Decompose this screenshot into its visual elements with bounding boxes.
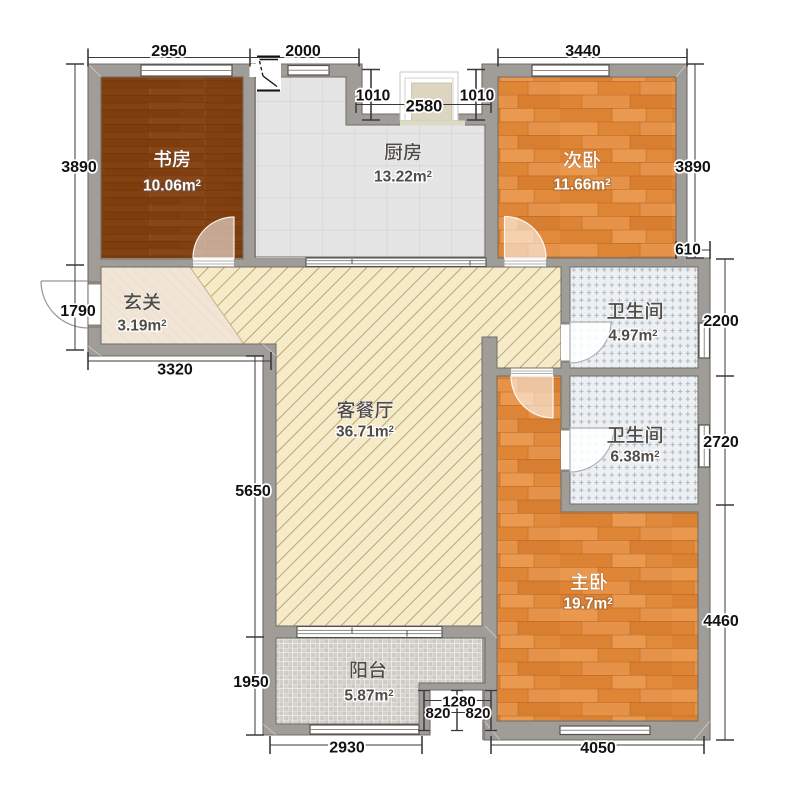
svg-text:3890: 3890 (675, 159, 711, 176)
svg-text:2580: 2580 (406, 97, 443, 115)
svg-text:4050: 4050 (580, 740, 616, 757)
svg-text:5.87m2: 5.87m2 (344, 688, 393, 705)
svg-text:2000: 2000 (285, 43, 321, 60)
svg-text:6.38m2: 6.38m2 (610, 449, 659, 466)
svg-text:3320: 3320 (157, 361, 193, 378)
svg-text:11.66m2: 11.66m2 (553, 177, 610, 194)
svg-text:13.22m2: 13.22m2 (374, 169, 432, 186)
svg-text:820: 820 (465, 705, 490, 722)
svg-text:19.7m2: 19.7m2 (563, 596, 612, 613)
svg-text:3.19m2: 3.19m2 (117, 318, 166, 335)
svg-text:2950: 2950 (151, 43, 187, 60)
svg-text:36.71m2: 36.71m2 (336, 424, 394, 441)
svg-text:820: 820 (425, 705, 450, 722)
svg-text:10.06m2: 10.06m2 (143, 178, 201, 195)
svg-text:610: 610 (675, 242, 701, 259)
svg-text:1950: 1950 (233, 674, 269, 691)
svg-text:3440: 3440 (565, 43, 601, 60)
svg-text:2930: 2930 (329, 739, 365, 756)
svg-text:2200: 2200 (703, 313, 739, 330)
svg-text:5650: 5650 (235, 483, 271, 500)
svg-text:2720: 2720 (703, 434, 739, 451)
svg-text:4.97m2: 4.97m2 (608, 328, 657, 345)
svg-text:1010: 1010 (356, 88, 390, 105)
svg-text:4460: 4460 (703, 613, 739, 630)
svg-text:3890: 3890 (61, 159, 97, 176)
svg-text:1010: 1010 (460, 88, 494, 105)
svg-text:1790: 1790 (60, 303, 96, 320)
